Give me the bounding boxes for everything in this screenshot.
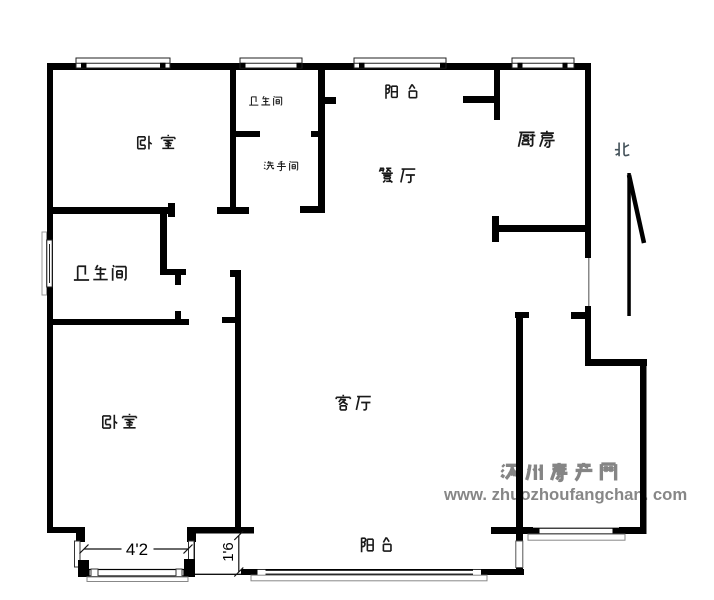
svg-text:1'6: 1'6 bbox=[220, 542, 237, 562]
svg-text:4'2: 4'2 bbox=[126, 540, 148, 559]
svg-text:www. zhuozhoufangchan. com: www. zhuozhoufangchan. com bbox=[443, 485, 687, 504]
